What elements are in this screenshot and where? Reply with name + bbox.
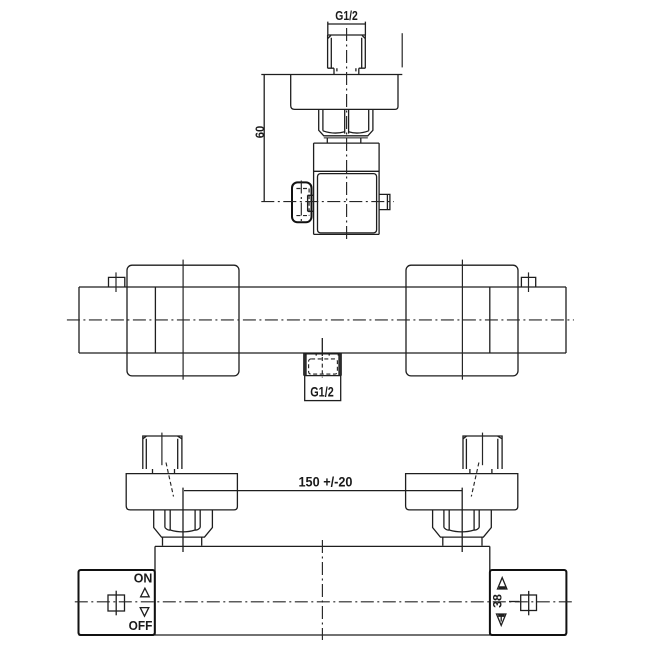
svg-text:G1/2: G1/2 bbox=[335, 8, 358, 23]
svg-text:OFF: OFF bbox=[129, 619, 153, 633]
svg-text:38: 38 bbox=[491, 594, 505, 608]
svg-text:ON: ON bbox=[134, 572, 153, 586]
svg-text:60: 60 bbox=[253, 125, 267, 138]
svg-text:150 +/-20: 150 +/-20 bbox=[299, 474, 353, 490]
svg-text:G1/2: G1/2 bbox=[310, 385, 334, 400]
